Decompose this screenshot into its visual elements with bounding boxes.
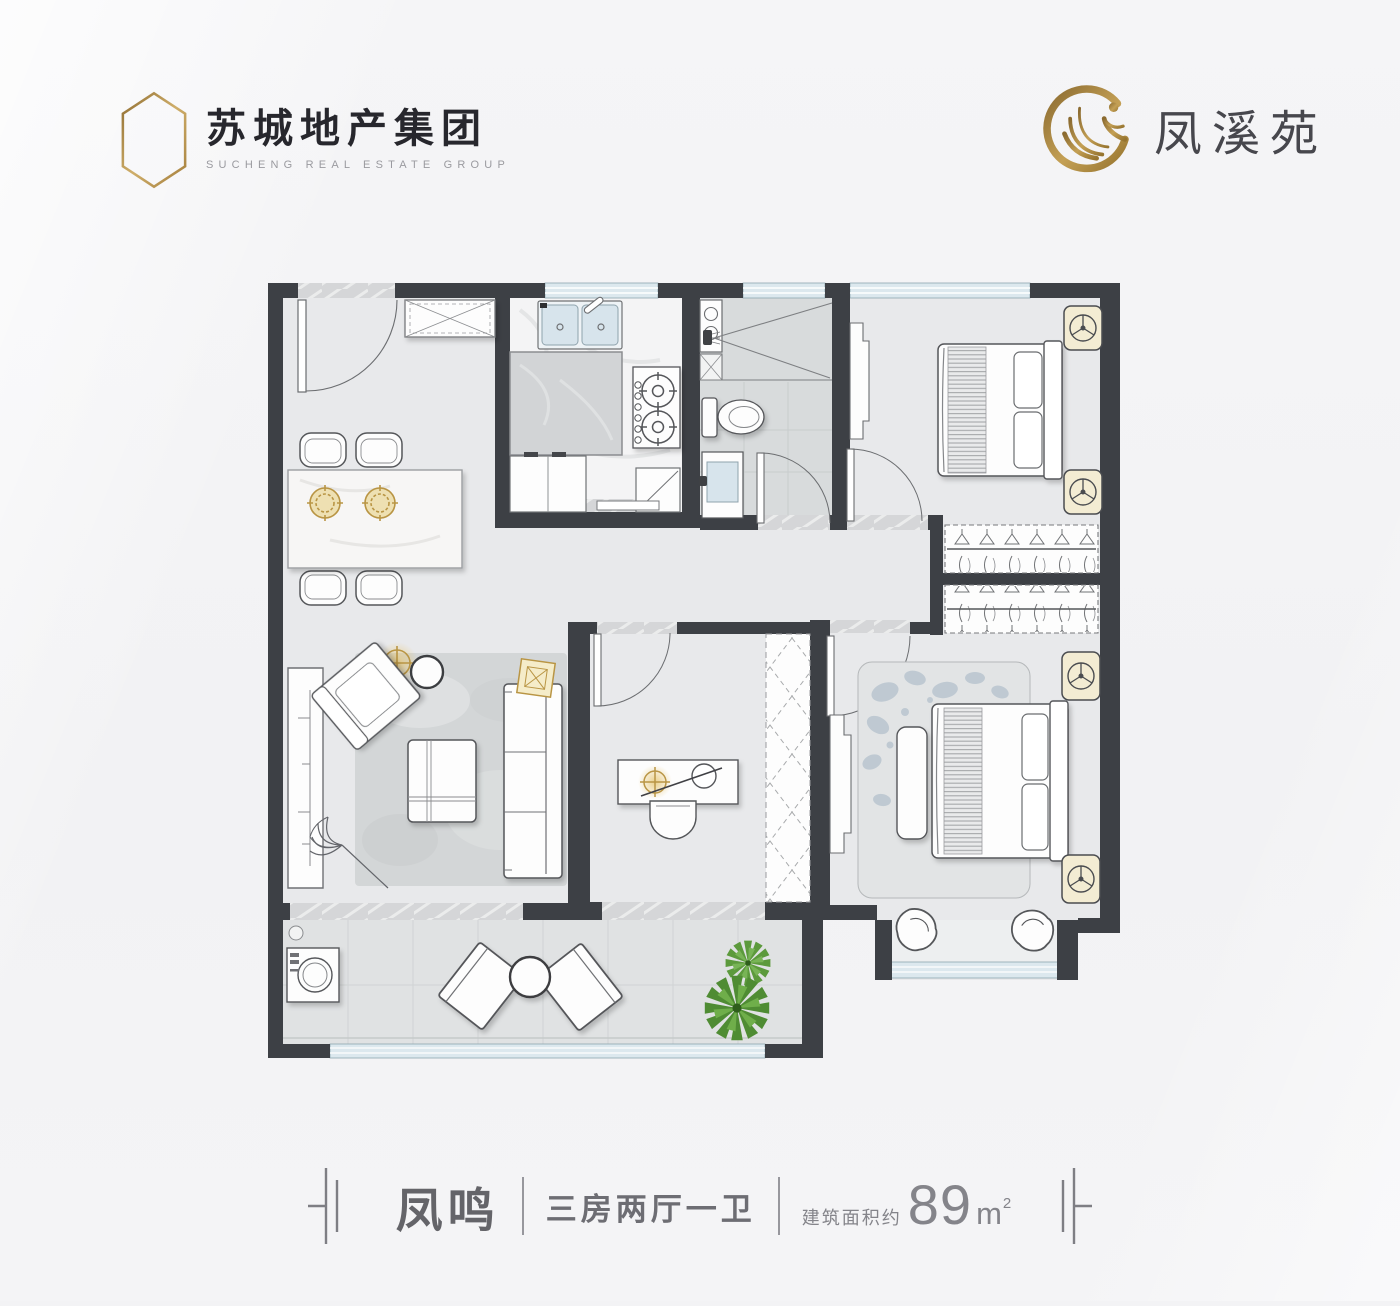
bedroom2-window <box>850 283 1030 298</box>
desk <box>618 760 738 804</box>
kitchen-counter <box>510 352 622 455</box>
building-icon <box>118 90 190 190</box>
vanity-faucet <box>699 476 707 486</box>
balcony-window <box>330 1044 765 1058</box>
project-name: 凤溪苑 <box>1154 94 1328 164</box>
right-bracket-icon <box>1058 1166 1094 1246</box>
toilet <box>702 398 764 437</box>
sofa <box>504 684 562 878</box>
coffee-table <box>408 740 476 822</box>
nightstand-lamp <box>1064 470 1102 514</box>
phoenix-icon <box>1038 74 1142 184</box>
area-info: 建筑面积约 89 m 2 <box>802 1180 1010 1232</box>
master-bed <box>932 701 1068 861</box>
study-closet <box>766 634 810 902</box>
bed-bench <box>897 727 927 839</box>
project-logo: 凤溪苑 <box>1038 74 1328 184</box>
bay-window-glass <box>890 962 1059 978</box>
area-superscript: 2 <box>1003 1195 1011 1212</box>
nightstand-lamp <box>1064 306 1102 350</box>
bed <box>938 341 1062 479</box>
divider <box>522 1177 524 1235</box>
area-unit: m <box>976 1196 1002 1232</box>
master-wardrobe <box>945 585 1098 633</box>
developer-logo: 苏城地产集团 SUCHENG REAL ESTATE GROUP <box>118 90 510 190</box>
gold-pillow <box>517 659 555 697</box>
bathroom-vanity <box>699 452 743 518</box>
floor-plan <box>0 0 1400 1301</box>
nightstand-lamp <box>1062 855 1100 903</box>
master-tv-panel <box>830 715 851 853</box>
balcony-table <box>510 957 550 997</box>
area-label: 建筑面积约 <box>802 1204 902 1230</box>
side-table <box>411 656 443 688</box>
nightstand-lamp <box>1062 652 1100 700</box>
developer-name-en: SUCHENG REAL ESTATE GROUP <box>206 159 510 171</box>
area-value: 89 <box>908 1180 972 1230</box>
kitchen-sliding-door <box>597 501 659 510</box>
unit-name: 凤鸣 <box>396 1172 500 1241</box>
drain <box>289 926 303 940</box>
bathroom-window <box>743 283 825 298</box>
left-bracket-icon <box>306 1166 342 1246</box>
desk-chair <box>650 801 696 839</box>
footer: 凤鸣 三房两厅一卫 建筑面积约 89 m 2 <box>0 1158 1400 1254</box>
shower-head-icon <box>703 330 712 345</box>
bedroom2-wardrobe <box>945 525 1098 573</box>
developer-name-cn: 苏城地产集团 <box>206 109 510 149</box>
kitchen-sink <box>538 296 622 349</box>
layout-type: 三房两厅一卫 <box>546 1184 756 1229</box>
dining-table <box>288 470 462 568</box>
shoe-cabinet <box>405 300 495 337</box>
washing-machine <box>287 948 339 1002</box>
kitchen-base-cabinet <box>510 452 586 512</box>
kitchen-stove <box>633 367 680 448</box>
divider <box>778 1177 780 1235</box>
kitchen-window <box>545 283 658 298</box>
